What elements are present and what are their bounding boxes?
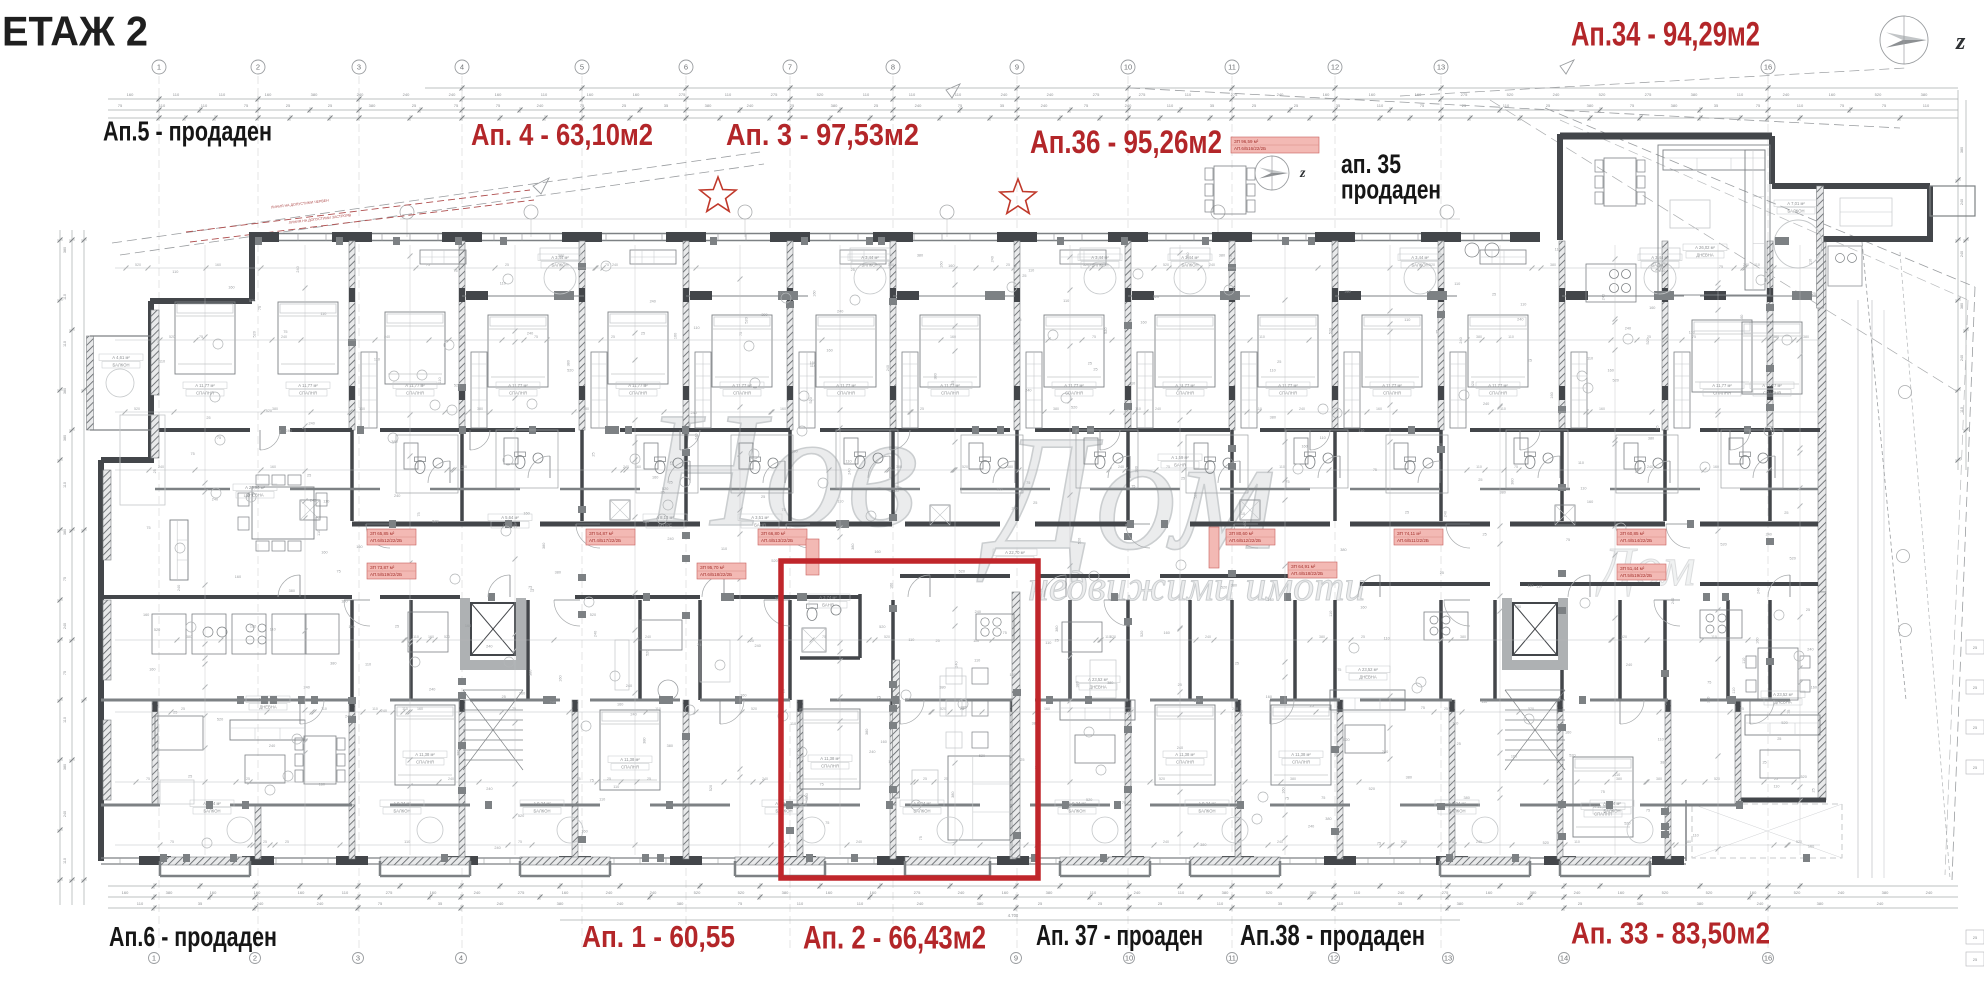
svg-text:275: 275 bbox=[1139, 92, 1146, 97]
svg-text:240: 240 bbox=[1299, 407, 1305, 411]
svg-text:160: 160 bbox=[127, 92, 134, 97]
svg-text:380: 380 bbox=[166, 890, 173, 895]
svg-text:160: 160 bbox=[1369, 92, 1376, 97]
svg-text:110: 110 bbox=[1574, 840, 1580, 844]
svg-text:ЗП 60,85 м²: ЗП 60,85 м² bbox=[1620, 531, 1645, 536]
svg-text:110: 110 bbox=[1063, 299, 1069, 303]
svg-text:АП.4/Б18/22/2Б: АП.4/Б18/22/2Б bbox=[1291, 571, 1323, 576]
svg-text:110: 110 bbox=[1520, 302, 1526, 306]
svg-text:АП.4/Б17/22/2Б: АП.4/Б17/22/2Б bbox=[589, 538, 621, 543]
svg-text:75: 75 bbox=[512, 707, 516, 711]
svg-text:БАЛКОН: БАЛКОН bbox=[204, 808, 221, 813]
svg-text:25: 25 bbox=[697, 643, 701, 647]
svg-text:25: 25 bbox=[670, 461, 674, 465]
svg-text:160: 160 bbox=[740, 693, 746, 697]
svg-text:25: 25 bbox=[1294, 103, 1299, 108]
svg-text:380: 380 bbox=[566, 360, 570, 366]
svg-text:11: 11 bbox=[1228, 954, 1236, 963]
svg-text:240: 240 bbox=[486, 644, 492, 648]
svg-text:А 9,24 м²: А 9,24 м² bbox=[1198, 801, 1216, 806]
svg-text:275: 275 bbox=[679, 92, 686, 97]
svg-text:520: 520 bbox=[1153, 295, 1159, 299]
svg-text:А 3,44 м²: А 3,44 м² bbox=[1181, 255, 1199, 260]
svg-text:110: 110 bbox=[323, 499, 329, 503]
svg-text:АП.6/Б12/22/2Б: АП.6/Б12/22/2Б bbox=[1229, 538, 1261, 543]
svg-text:380: 380 bbox=[1319, 635, 1325, 639]
svg-text:520: 520 bbox=[454, 383, 460, 387]
svg-text:1: 1 bbox=[157, 63, 161, 72]
svg-text:240: 240 bbox=[1926, 890, 1933, 895]
svg-text:25: 25 bbox=[661, 490, 665, 494]
svg-text:110: 110 bbox=[790, 722, 796, 726]
svg-text:35: 35 bbox=[198, 901, 203, 906]
svg-text:160: 160 bbox=[633, 92, 640, 97]
svg-text:z: z bbox=[1955, 29, 1966, 55]
svg-text:25: 25 bbox=[1038, 901, 1043, 906]
svg-text:А 11,77 м²: А 11,77 м² bbox=[836, 383, 856, 388]
svg-text:240: 240 bbox=[1011, 506, 1017, 510]
svg-text:160: 160 bbox=[826, 349, 832, 353]
svg-text:380: 380 bbox=[272, 407, 278, 411]
svg-text:520: 520 bbox=[751, 707, 757, 711]
svg-text:160: 160 bbox=[1511, 755, 1517, 759]
svg-text:160: 160 bbox=[1750, 890, 1757, 895]
svg-text:380: 380 bbox=[1882, 890, 1889, 895]
svg-text:А 11,77 м²: А 11,77 м² bbox=[195, 383, 215, 388]
svg-text:БАЛКОН: БАЛКОН bbox=[534, 808, 551, 813]
svg-text:520: 520 bbox=[444, 635, 450, 639]
svg-text:25: 25 bbox=[263, 840, 267, 844]
svg-text:А 23,52 м²: А 23,52 м² bbox=[1358, 667, 1378, 672]
svg-text:520: 520 bbox=[1078, 538, 1082, 544]
svg-text:25: 25 bbox=[1973, 725, 1978, 730]
svg-text:110: 110 bbox=[1808, 259, 1812, 265]
svg-text:160: 160 bbox=[1010, 673, 1016, 677]
svg-text:110: 110 bbox=[1508, 335, 1514, 339]
svg-text:7: 7 bbox=[788, 63, 792, 72]
svg-text:160: 160 bbox=[250, 625, 256, 629]
svg-text:240: 240 bbox=[403, 92, 410, 97]
svg-text:380: 380 bbox=[782, 890, 789, 895]
svg-text:110: 110 bbox=[1732, 688, 1736, 694]
svg-text:25: 25 bbox=[153, 469, 157, 473]
svg-text:240: 240 bbox=[494, 846, 500, 850]
svg-text:75: 75 bbox=[244, 103, 249, 108]
svg-text:25: 25 bbox=[1444, 707, 1448, 711]
svg-text:СПАЛНЯ: СПАЛНЯ bbox=[416, 759, 434, 764]
svg-text:110: 110 bbox=[1476, 465, 1482, 469]
svg-text:25: 25 bbox=[790, 103, 795, 108]
svg-text:25: 25 bbox=[1556, 777, 1560, 781]
svg-text:240: 240 bbox=[1743, 263, 1749, 267]
svg-text:75: 75 bbox=[1421, 706, 1425, 710]
svg-text:СПАЛНЯ: СПАЛНЯ bbox=[733, 390, 751, 395]
svg-text:240: 240 bbox=[650, 300, 656, 304]
svg-text:2: 2 bbox=[256, 63, 260, 72]
svg-text:ДНЕВНА: ДНЕВНА bbox=[1696, 252, 1713, 257]
svg-text:380: 380 bbox=[1186, 253, 1190, 259]
svg-text:А 11,38 м²: А 11,38 м² bbox=[1291, 752, 1311, 757]
svg-text:380: 380 bbox=[1697, 901, 1704, 906]
svg-text:16: 16 bbox=[1764, 954, 1772, 963]
svg-text:СПАЛНЯ: СПАЛНЯ bbox=[1383, 390, 1401, 395]
svg-text:75: 75 bbox=[170, 840, 174, 844]
svg-text:160: 160 bbox=[780, 407, 786, 411]
svg-text:А 11,77 м²: А 11,77 м² bbox=[1278, 383, 1298, 388]
svg-text:А 11,77 м²: А 11,77 м² bbox=[628, 383, 648, 388]
svg-text:110: 110 bbox=[1689, 330, 1695, 334]
svg-text:Ап.34 - 94,29м2: Ап.34 - 94,29м2 bbox=[1571, 16, 1760, 54]
svg-text:380: 380 bbox=[1656, 777, 1662, 781]
svg-text:110: 110 bbox=[1711, 635, 1717, 639]
svg-text:380: 380 bbox=[461, 465, 467, 469]
svg-text:25: 25 bbox=[1088, 362, 1092, 366]
svg-text:160: 160 bbox=[215, 263, 221, 267]
svg-text:110: 110 bbox=[1693, 833, 1699, 837]
svg-text:Ап. 2 - 66,43м2: Ап. 2 - 66,43м2 bbox=[803, 920, 986, 956]
svg-text:75: 75 bbox=[1166, 465, 1170, 469]
svg-text:520: 520 bbox=[1790, 557, 1796, 561]
svg-text:25: 25 bbox=[1578, 901, 1583, 906]
svg-text:240: 240 bbox=[1671, 598, 1675, 604]
svg-text:25: 25 bbox=[181, 707, 185, 711]
svg-text:А 4,61 м²: А 4,61 м² bbox=[112, 355, 130, 360]
svg-text:75: 75 bbox=[1092, 335, 1096, 339]
svg-text:75: 75 bbox=[1017, 318, 1021, 322]
svg-text:25: 25 bbox=[1973, 645, 1978, 650]
svg-text:А 3,51 м²: А 3,51 м² bbox=[751, 515, 769, 520]
svg-text:110: 110 bbox=[1773, 784, 1779, 788]
svg-text:10: 10 bbox=[1125, 954, 1133, 963]
svg-text:240: 240 bbox=[1574, 890, 1581, 895]
svg-text:110: 110 bbox=[1194, 699, 1200, 703]
svg-text:240: 240 bbox=[449, 92, 456, 97]
svg-text:160: 160 bbox=[1013, 342, 1019, 346]
svg-text:А 23,52 м²: А 23,52 м² bbox=[1088, 677, 1108, 682]
svg-text:ЗП 74,11 м²: ЗП 74,11 м² bbox=[1397, 531, 1421, 536]
svg-text:520: 520 bbox=[879, 625, 885, 629]
svg-text:35: 35 bbox=[1210, 103, 1215, 108]
svg-text:160: 160 bbox=[265, 92, 272, 97]
svg-text:А 26,02 м²: А 26,02 м² bbox=[1695, 245, 1715, 250]
svg-text:160: 160 bbox=[254, 890, 261, 895]
svg-text:160: 160 bbox=[874, 550, 880, 554]
svg-text:110: 110 bbox=[159, 360, 165, 364]
svg-text:160: 160 bbox=[417, 707, 423, 711]
svg-text:160: 160 bbox=[674, 333, 678, 339]
svg-text:380: 380 bbox=[1406, 776, 1412, 780]
svg-text:380: 380 bbox=[896, 465, 902, 469]
svg-text:380: 380 bbox=[557, 901, 564, 906]
svg-text:160: 160 bbox=[1607, 369, 1613, 373]
svg-text:240: 240 bbox=[1647, 465, 1653, 469]
svg-text:520: 520 bbox=[1159, 777, 1165, 781]
svg-text:110: 110 bbox=[317, 530, 321, 536]
svg-text:75: 75 bbox=[1707, 681, 1711, 685]
svg-text:380: 380 bbox=[1231, 583, 1237, 587]
svg-text:380: 380 bbox=[1960, 303, 1964, 309]
svg-text:25: 25 bbox=[1252, 103, 1257, 108]
svg-text:75: 75 bbox=[1003, 631, 1007, 635]
svg-text:А 11,38 м²: А 11,38 м² bbox=[415, 752, 435, 757]
svg-text:380: 380 bbox=[555, 570, 561, 574]
svg-text:25: 25 bbox=[1006, 263, 1010, 267]
svg-text:240: 240 bbox=[626, 684, 632, 688]
svg-text:А 11,77 м²: А 11,77 м² bbox=[732, 383, 752, 388]
svg-text:240: 240 bbox=[1001, 92, 1008, 97]
svg-text:110: 110 bbox=[857, 901, 864, 906]
svg-text:160: 160 bbox=[881, 740, 887, 744]
svg-text:380: 380 bbox=[1046, 890, 1053, 895]
svg-text:ЗП 95,70 м²: ЗП 95,70 м² bbox=[700, 565, 725, 570]
svg-text:520: 520 bbox=[817, 92, 824, 97]
svg-text:520: 520 bbox=[1429, 263, 1435, 267]
svg-text:75: 75 bbox=[378, 901, 383, 906]
svg-text:25: 25 bbox=[1277, 360, 1281, 364]
svg-text:110: 110 bbox=[374, 358, 380, 362]
svg-text:380: 380 bbox=[1921, 92, 1928, 97]
svg-text:БАНЯ: БАНЯ bbox=[754, 522, 766, 527]
svg-text:25: 25 bbox=[936, 639, 940, 643]
svg-text:240: 240 bbox=[177, 585, 181, 591]
svg-text:240: 240 bbox=[1232, 707, 1238, 711]
svg-text:25: 25 bbox=[1546, 103, 1551, 108]
svg-text:10: 10 bbox=[1124, 63, 1132, 72]
svg-text:А 1,59 м²: А 1,59 м² bbox=[1171, 455, 1189, 460]
svg-text:ДНЕВНА: ДНЕВНА bbox=[1089, 684, 1106, 689]
svg-text:Ап. 3 - 97,53м2: Ап. 3 - 97,53м2 bbox=[726, 117, 919, 152]
svg-text:ЗП 64,91 м²: ЗП 64,91 м² bbox=[1291, 564, 1316, 569]
svg-text:35: 35 bbox=[1714, 103, 1719, 108]
svg-text:160: 160 bbox=[1002, 890, 1009, 895]
svg-text:520: 520 bbox=[1140, 631, 1144, 637]
svg-text:520: 520 bbox=[1071, 406, 1077, 410]
svg-text:240: 240 bbox=[1444, 511, 1448, 517]
svg-text:240: 240 bbox=[474, 890, 481, 895]
svg-text:35: 35 bbox=[1000, 103, 1005, 108]
svg-text:75: 75 bbox=[1285, 797, 1289, 801]
svg-text:380: 380 bbox=[1707, 697, 1711, 703]
svg-text:СПАЛНЯ: СПАЛНЯ bbox=[1176, 759, 1194, 764]
svg-text:110: 110 bbox=[955, 92, 962, 97]
svg-text:240: 240 bbox=[1838, 890, 1845, 895]
svg-text:160: 160 bbox=[948, 264, 954, 268]
svg-text:240: 240 bbox=[1459, 337, 1463, 343]
svg-text:25: 25 bbox=[607, 777, 611, 781]
svg-text:240: 240 bbox=[1155, 407, 1161, 411]
svg-text:75: 75 bbox=[1102, 263, 1106, 267]
svg-text:380: 380 bbox=[391, 440, 397, 444]
svg-text:75: 75 bbox=[118, 103, 123, 108]
svg-text:Ап.38 - продаден: Ап.38 - продаден bbox=[1240, 920, 1425, 952]
svg-text:380: 380 bbox=[330, 662, 336, 666]
svg-text:520: 520 bbox=[645, 650, 649, 656]
svg-text:А 9,24 м²: А 9,24 м² bbox=[533, 801, 551, 806]
svg-text:3: 3 bbox=[356, 954, 360, 963]
svg-text:160: 160 bbox=[465, 624, 471, 628]
svg-text:25: 25 bbox=[1528, 358, 1532, 362]
svg-text:СПАЛНЯ: СПАЛНЯ bbox=[821, 763, 839, 768]
svg-text:75: 75 bbox=[1692, 335, 1696, 339]
svg-text:110: 110 bbox=[1090, 890, 1097, 895]
svg-text:75: 75 bbox=[1321, 796, 1325, 800]
svg-text:25: 25 bbox=[530, 589, 534, 593]
svg-text:520: 520 bbox=[134, 407, 140, 411]
svg-text:275: 275 bbox=[386, 890, 393, 895]
svg-text:380: 380 bbox=[1530, 890, 1537, 895]
svg-text:380: 380 bbox=[761, 313, 767, 317]
svg-text:25: 25 bbox=[641, 332, 645, 336]
svg-text:110: 110 bbox=[1028, 269, 1034, 273]
svg-text:160: 160 bbox=[1376, 407, 1382, 411]
svg-text:520: 520 bbox=[771, 559, 777, 563]
svg-text:380: 380 bbox=[791, 450, 797, 454]
svg-text:240: 240 bbox=[281, 335, 287, 339]
svg-text:110: 110 bbox=[63, 294, 67, 300]
svg-text:240: 240 bbox=[257, 901, 264, 906]
svg-text:240: 240 bbox=[667, 537, 673, 541]
svg-text:75: 75 bbox=[146, 526, 150, 530]
svg-text:380: 380 bbox=[643, 737, 647, 743]
svg-text:БАЛКОН: БАЛКОН bbox=[1412, 262, 1429, 267]
svg-text:110: 110 bbox=[1454, 282, 1460, 286]
svg-text:520: 520 bbox=[590, 613, 596, 617]
svg-text:БАЛКОН: БАЛКОН bbox=[1788, 208, 1805, 213]
svg-text:75: 75 bbox=[1229, 255, 1233, 259]
svg-text:АП.5/Б19/22/2Б: АП.5/Б19/22/2Б bbox=[1620, 573, 1652, 578]
svg-text:110: 110 bbox=[655, 707, 661, 711]
svg-text:110: 110 bbox=[137, 901, 144, 906]
svg-text:240: 240 bbox=[1163, 840, 1169, 844]
svg-text:380: 380 bbox=[456, 750, 460, 756]
svg-text:25: 25 bbox=[1973, 765, 1978, 770]
svg-text:380: 380 bbox=[1290, 777, 1296, 781]
svg-text:А 28,96 м²: А 28,96 м² bbox=[245, 485, 265, 490]
svg-text:110: 110 bbox=[1452, 722, 1458, 726]
svg-text:380: 380 bbox=[1691, 92, 1698, 97]
svg-text:А 9,24 м²: А 9,24 м² bbox=[393, 801, 411, 806]
svg-text:75: 75 bbox=[1719, 265, 1723, 269]
svg-text:380: 380 bbox=[865, 729, 869, 735]
svg-text:СПАЛНЯ: СПАЛНЯ bbox=[1279, 390, 1297, 395]
svg-text:А 9,24 м²: А 9,24 м² bbox=[1448, 801, 1466, 806]
svg-text:520: 520 bbox=[1569, 754, 1575, 758]
svg-text:25: 25 bbox=[1784, 511, 1788, 515]
svg-text:ЗП 96,59 м²: ЗП 96,59 м² bbox=[1234, 139, 1259, 144]
svg-text:75: 75 bbox=[1840, 103, 1845, 108]
svg-text:380: 380 bbox=[1637, 901, 1644, 906]
svg-text:25: 25 bbox=[1440, 571, 1444, 575]
svg-text:520: 520 bbox=[1794, 890, 1801, 895]
svg-text:110: 110 bbox=[1178, 890, 1185, 895]
svg-text:А 11,77 м²: А 11,77 м² bbox=[298, 383, 318, 388]
svg-text:380: 380 bbox=[1222, 890, 1229, 895]
svg-text:520: 520 bbox=[959, 569, 965, 573]
svg-text:75: 75 bbox=[739, 332, 743, 336]
svg-text:380: 380 bbox=[1270, 416, 1276, 420]
svg-text:75: 75 bbox=[496, 103, 501, 108]
svg-text:520: 520 bbox=[1104, 327, 1108, 333]
svg-text:380: 380 bbox=[939, 685, 945, 689]
svg-text:380: 380 bbox=[63, 529, 67, 535]
svg-text:240: 240 bbox=[1960, 355, 1964, 361]
svg-text:А 11,77 м²: А 11,77 м² bbox=[1712, 383, 1732, 388]
svg-text:25: 25 bbox=[944, 777, 948, 781]
svg-text:240: 240 bbox=[63, 811, 67, 817]
svg-text:25: 25 bbox=[1973, 957, 1978, 962]
svg-text:А 7,01 м²: А 7,01 м² bbox=[1787, 201, 1805, 206]
svg-text:СПАЛНЯ: СПАЛНЯ bbox=[1489, 390, 1507, 395]
svg-text:СПАЛНЯ: СПАЛНЯ bbox=[1292, 759, 1310, 764]
svg-text:Ап. 4 - 63,10м2: Ап. 4 - 63,10м2 bbox=[471, 117, 653, 152]
svg-text:160: 160 bbox=[1618, 890, 1625, 895]
svg-text:240: 240 bbox=[1118, 465, 1124, 469]
svg-text:160: 160 bbox=[523, 511, 529, 515]
svg-text:160: 160 bbox=[826, 890, 833, 895]
svg-text:380: 380 bbox=[1660, 760, 1666, 764]
svg-text:160: 160 bbox=[1550, 392, 1554, 398]
svg-text:240: 240 bbox=[1483, 402, 1489, 406]
svg-text:АП.6/Б16/22/2Б: АП.6/Б16/22/2Б bbox=[1234, 146, 1266, 151]
svg-text:БАЛКОН: БАЛКОН bbox=[1449, 808, 1466, 813]
svg-text:520: 520 bbox=[940, 707, 946, 711]
svg-text:Ап. 37 - проаден: Ап. 37 - проаден bbox=[1036, 920, 1203, 952]
svg-text:160: 160 bbox=[359, 407, 365, 411]
svg-text:110: 110 bbox=[1217, 901, 1224, 906]
svg-text:СПАЛНЯ: СПАЛНЯ bbox=[1065, 390, 1083, 395]
svg-text:25: 25 bbox=[1309, 704, 1313, 708]
svg-text:240: 240 bbox=[1277, 840, 1283, 844]
svg-text:13: 13 bbox=[1444, 954, 1452, 963]
svg-text:240: 240 bbox=[304, 686, 310, 690]
svg-text:110: 110 bbox=[1527, 584, 1533, 588]
svg-text:БАЛКОН: БАЛКОН bbox=[552, 262, 569, 267]
svg-text:520: 520 bbox=[1507, 92, 1514, 97]
svg-text:СПАЛНЯ: СПАЛНЯ bbox=[837, 390, 855, 395]
svg-text:75: 75 bbox=[1122, 801, 1126, 805]
svg-text:380: 380 bbox=[1671, 103, 1678, 108]
svg-text:240: 240 bbox=[310, 499, 316, 503]
svg-text:380: 380 bbox=[63, 435, 67, 441]
svg-text:380: 380 bbox=[1817, 901, 1824, 906]
svg-text:25: 25 bbox=[622, 103, 627, 108]
svg-text:160: 160 bbox=[1565, 731, 1571, 735]
svg-text:240: 240 bbox=[394, 494, 400, 498]
svg-text:160: 160 bbox=[1829, 92, 1836, 97]
svg-text:110: 110 bbox=[1536, 585, 1542, 589]
svg-text:ЗП 66,80 м²: ЗП 66,80 м² bbox=[761, 531, 786, 536]
svg-text:160: 160 bbox=[1140, 321, 1146, 325]
svg-text:АП.6/Б12/22/2Б: АП.6/Б12/22/2Б bbox=[370, 538, 402, 543]
svg-text:240: 240 bbox=[1783, 92, 1790, 97]
svg-text:240: 240 bbox=[63, 623, 67, 629]
svg-text:25: 25 bbox=[1806, 608, 1810, 612]
svg-text:160: 160 bbox=[270, 465, 276, 469]
svg-text:160: 160 bbox=[319, 783, 325, 787]
svg-text:240: 240 bbox=[1476, 840, 1482, 844]
svg-text:240: 240 bbox=[1664, 699, 1668, 705]
svg-text:240: 240 bbox=[617, 901, 624, 906]
svg-text:240: 240 bbox=[308, 422, 314, 426]
svg-text:275: 275 bbox=[518, 890, 525, 895]
svg-text:160: 160 bbox=[1811, 685, 1817, 689]
svg-text:380: 380 bbox=[311, 92, 318, 97]
svg-text:75: 75 bbox=[1450, 840, 1454, 844]
svg-text:6: 6 bbox=[684, 63, 688, 72]
svg-text:9: 9 bbox=[1015, 63, 1019, 72]
svg-text:ДНЕВНА: ДНЕВНА bbox=[1359, 674, 1376, 679]
svg-text:25: 25 bbox=[1478, 478, 1482, 482]
